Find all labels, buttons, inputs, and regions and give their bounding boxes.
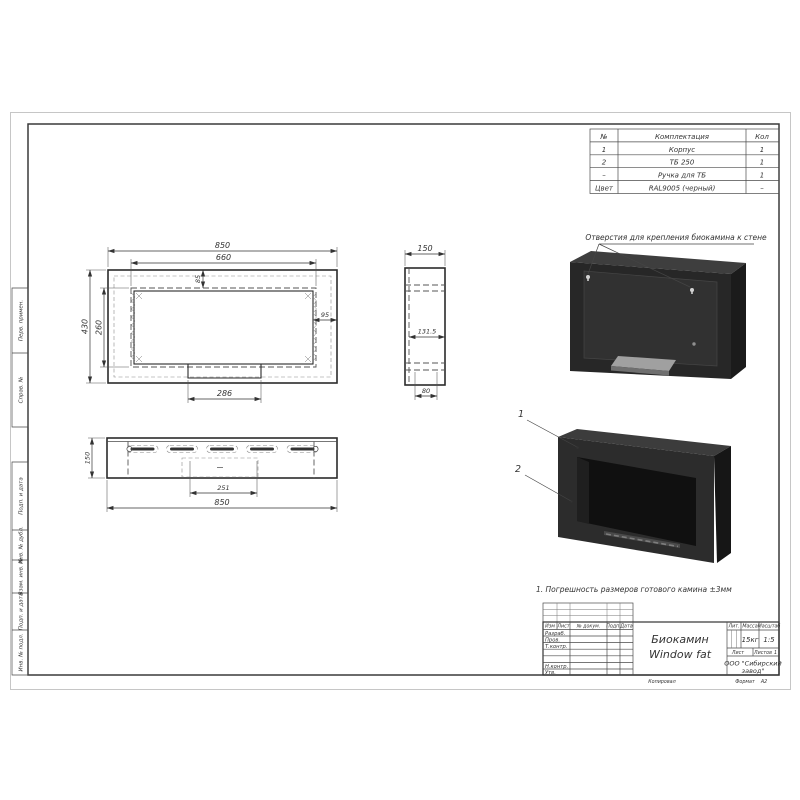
back-panel	[584, 271, 717, 366]
back-view-side-face	[731, 263, 746, 379]
dim-text-131-5: 131.5	[418, 328, 437, 336]
drawing-svg: Перв. примен. Справ. № Подп. и дата Инв.…	[0, 0, 800, 800]
dim-text-850: 850	[215, 241, 230, 250]
parts-table-cell: 1	[760, 159, 764, 167]
scale-value: 1:5	[763, 636, 775, 644]
callout-2: 2	[515, 464, 521, 475]
tolerance-note: 1. Погрешность размеров готового камина …	[536, 585, 732, 594]
paper-sheet	[11, 113, 791, 690]
keyhole-screw	[692, 342, 695, 345]
parts-table-cell: –	[602, 172, 606, 180]
dim-text-430: 430	[81, 319, 90, 334]
scale-label: Масштаб	[758, 624, 781, 630]
dim-text-850b: 850	[214, 498, 229, 507]
doc-title-line1: Биокамин	[651, 633, 708, 646]
callout-1: 1	[518, 409, 524, 420]
parts-table-cell: 2	[602, 159, 607, 167]
parts-table-cell: Ручка для ТБ	[658, 172, 706, 180]
parts-table-cell: 1	[760, 146, 764, 154]
role-prov: Пров.	[545, 637, 560, 643]
parts-table-cell: –	[760, 185, 764, 193]
sheet-label: Лист	[731, 650, 744, 656]
dim-text-286: 286	[217, 389, 232, 398]
vent-slot-inner	[131, 448, 155, 451]
doc-title-line2: Window fat	[649, 648, 712, 661]
parts-table-cell: RAL9005 (черный)	[649, 185, 716, 193]
col-izm: Изм	[545, 624, 555, 630]
col-list: Лист	[556, 624, 569, 630]
technical-drawing-page: Перв. примен. Справ. № Подп. и дата Инв.…	[0, 0, 800, 800]
front-view3d-side-face	[714, 446, 731, 563]
margin-label: Взам. инв. №	[19, 558, 25, 596]
role-nkontr: Н.контр.	[545, 664, 568, 670]
dim-text-660: 660	[216, 253, 231, 262]
parts-table-header: №	[599, 133, 607, 141]
dim-text-251: 251	[217, 484, 229, 492]
format-value: А2	[760, 679, 767, 685]
parts-table-cell: Цвет	[595, 185, 614, 193]
vent-slot-inner	[291, 448, 315, 451]
mount-note-text: Отверстия для крепления биокамина к стен…	[585, 233, 767, 242]
mass-value: 15кг	[742, 636, 759, 644]
lit-label: Лит.	[727, 624, 739, 630]
parts-table-cell: ТБ 250	[670, 159, 695, 167]
company-line2: завод"	[742, 667, 765, 675]
col-podp: Подп.	[606, 624, 621, 630]
parts-table-cell: 1	[760, 172, 764, 180]
dim-text-80: 80	[422, 387, 430, 395]
mass-label: Масса	[742, 624, 757, 630]
vent-slot-inner	[250, 448, 274, 451]
callout-1-dot	[576, 446, 579, 449]
dim-text-150b: 150	[84, 452, 92, 464]
margin-label: Инв. № подл.	[19, 633, 25, 671]
callout-2-dot	[570, 500, 572, 502]
dim-text-150: 150	[417, 244, 432, 253]
vent-slot-inner	[170, 448, 194, 451]
margin-label: Подп. и дата	[19, 477, 25, 515]
keyhole-slot	[587, 277, 589, 281]
copied-label: Копировал	[648, 679, 675, 685]
dim-text-95: 95	[321, 311, 329, 319]
parts-table-cell: 1	[602, 146, 606, 154]
keyhole-slot	[691, 290, 693, 294]
dim-text-85: 85	[194, 275, 202, 283]
parts-table-header: Кол	[755, 133, 769, 141]
margin-label: Подп. и дата	[19, 592, 25, 630]
role-utv: Утв.	[545, 670, 556, 676]
format-label: Формат	[735, 679, 755, 685]
margin-label: Справ. №	[19, 376, 25, 403]
firebox-left-wall	[577, 457, 589, 524]
col-data: Дата	[619, 624, 632, 630]
parts-table-cell: Корпус	[669, 146, 695, 154]
role-razrab: Разраб.	[545, 631, 565, 637]
sheets-label: Листов	[753, 650, 772, 656]
sheets-value: 1	[774, 650, 777, 656]
role-tkontr: Т.контр.	[545, 644, 567, 650]
vent-slot-inner	[210, 448, 234, 451]
col-ndokum: № докум.	[576, 624, 601, 630]
parts-table-header: Комплектация	[655, 133, 709, 141]
dim-text-260: 260	[95, 320, 104, 335]
margin-label: Перв. примен.	[19, 300, 25, 342]
